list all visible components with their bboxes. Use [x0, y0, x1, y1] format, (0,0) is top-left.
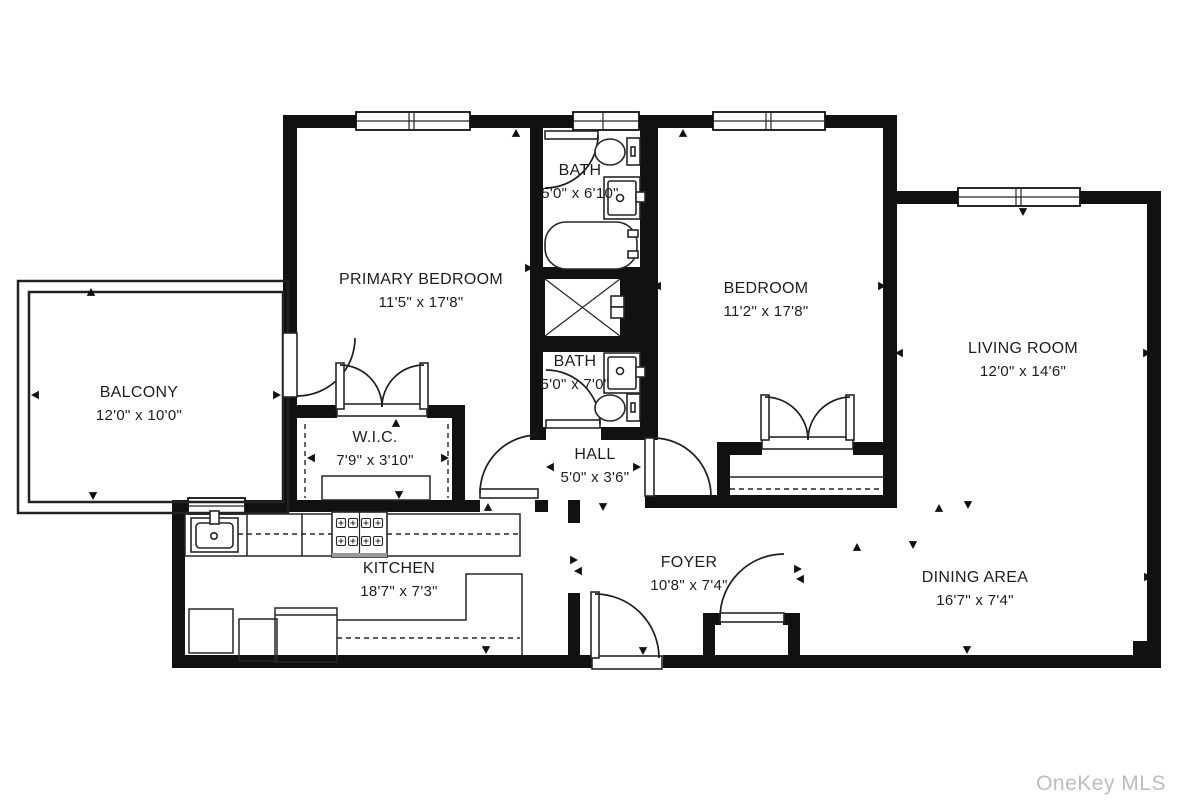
room-name: BATH — [541, 159, 619, 183]
room-label-living-room: LIVING ROOM 12'0" x 14'6" — [968, 337, 1078, 384]
room-dims: 11'5" x 17'8" — [339, 292, 503, 315]
room-label-bedroom: BEDROOM 11'2" x 17'8" — [723, 277, 808, 324]
room-label-hall: HALL 5'0" x 3'6" — [561, 443, 630, 490]
room-name: W.I.C. — [336, 426, 414, 450]
room-name: HALL — [561, 443, 630, 467]
room-name: BEDROOM — [723, 277, 808, 301]
room-name: PRIMARY BEDROOM — [339, 268, 503, 292]
room-label-dining-area: DINING AREA 16'7" x 7'4" — [922, 566, 1028, 613]
room-name: BALCONY — [96, 381, 182, 405]
room-name: LIVING ROOM — [968, 337, 1078, 361]
kitchen-sink — [191, 511, 238, 552]
room-dims: 18'7" x 7'3" — [360, 581, 438, 604]
room-dims: 5'0" x 6'10" — [541, 183, 619, 206]
living-room-window — [958, 188, 1080, 206]
bedroom-window — [713, 112, 825, 130]
room-name: FOYER — [650, 551, 728, 575]
room-label-foyer: FOYER 10'8" x 7'4" — [650, 551, 728, 598]
stove — [332, 512, 387, 557]
watermark-onekey-mls: OneKey MLS — [1036, 772, 1166, 796]
bath-window — [573, 112, 639, 130]
primary-bedroom-window — [356, 112, 470, 130]
room-dims: 7'9" x 3'10" — [336, 450, 414, 473]
bedroom-closet-interior — [730, 477, 883, 489]
kitchen-counters — [185, 511, 522, 662]
room-dims: 10'8" x 7'4" — [650, 575, 728, 598]
bedroom-closet-french-doors — [761, 395, 854, 449]
shower — [543, 277, 624, 338]
primary-to-hall-door — [480, 435, 538, 498]
bedroom-door — [645, 438, 711, 496]
room-label-bath-2: BATH 5'0" x 7'0" — [541, 350, 610, 397]
kitchen-appliances — [189, 608, 337, 662]
room-label-primary-bedroom: PRIMARY BEDROOM 11'5" x 17'8" — [339, 268, 503, 315]
room-dims: 11'2" x 17'8" — [723, 301, 808, 324]
room-name: DINING AREA — [922, 566, 1028, 590]
room-dims: 16'7" x 7'4" — [922, 590, 1028, 613]
room-dims: 5'0" x 7'0" — [541, 374, 610, 397]
room-name: BATH — [541, 350, 610, 374]
room-dims: 5'0" x 3'6" — [561, 467, 630, 490]
room-label-kitchen: KITCHEN 18'7" x 7'3" — [360, 557, 438, 604]
foyer-closet-door — [720, 554, 784, 622]
floor-plan-page: PRIMARY BEDROOM 11'5" x 17'8" BATH 5'0" … — [0, 0, 1184, 800]
room-label-balcony: BALCONY 12'0" x 10'0" — [96, 381, 182, 428]
room-dims: 12'0" x 14'6" — [968, 361, 1078, 384]
wic-french-doors — [336, 363, 428, 416]
room-label-wic: W.I.C. 7'9" x 3'10" — [336, 426, 414, 473]
room-dims: 12'0" x 10'0" — [96, 405, 182, 428]
entry-door — [591, 592, 662, 669]
room-label-bath-1: BATH 5'0" x 6'10" — [541, 159, 619, 206]
room-name: KITCHEN — [360, 557, 438, 581]
